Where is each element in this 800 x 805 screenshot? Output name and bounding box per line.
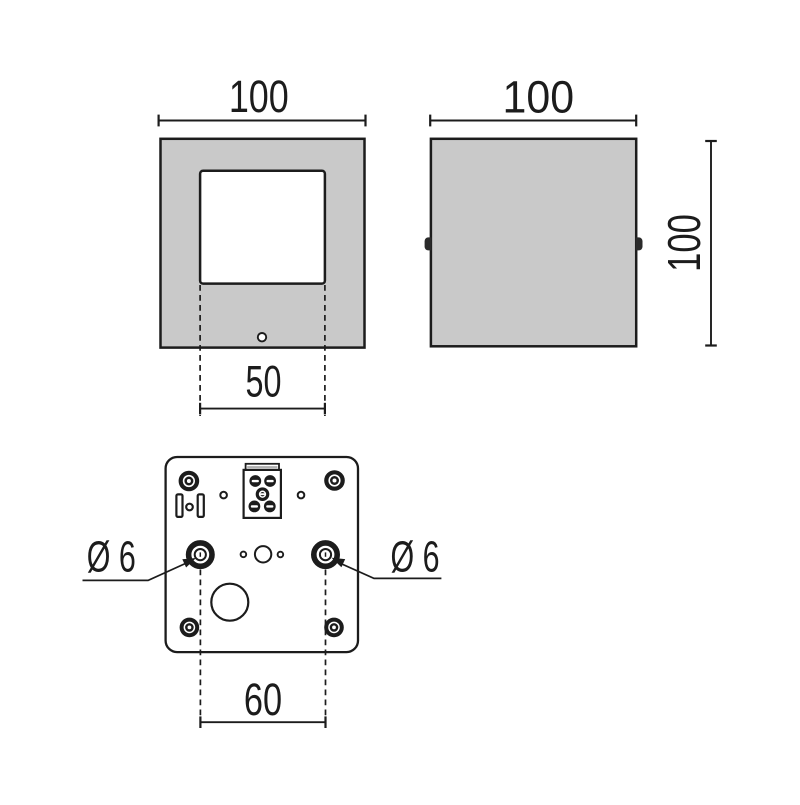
svg-text:100: 100 <box>658 214 710 272</box>
svg-text:60: 60 <box>244 674 282 725</box>
svg-text:50: 50 <box>246 358 282 407</box>
svg-text:100: 100 <box>503 72 575 122</box>
svg-text:100: 100 <box>229 71 289 122</box>
svg-text:Ø 6: Ø 6 <box>390 532 439 581</box>
svg-text:Ø 6: Ø 6 <box>87 532 136 581</box>
